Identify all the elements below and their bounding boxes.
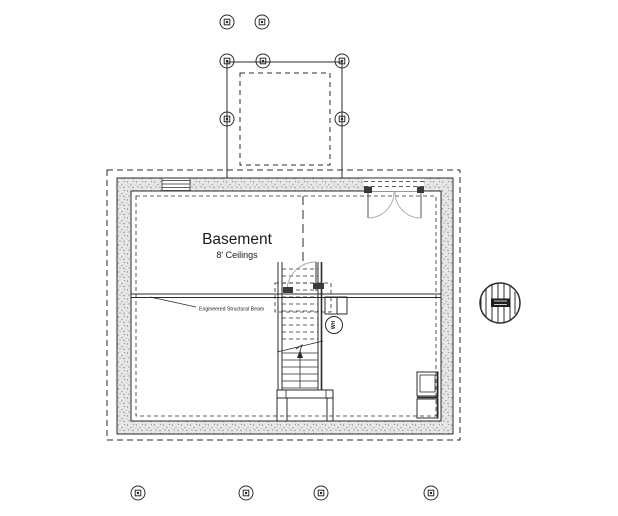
room-title: Basement (202, 231, 272, 248)
pier-marker (255, 15, 269, 29)
pier-marker (239, 486, 253, 500)
pier-marker (220, 15, 234, 29)
pier-marker (256, 54, 270, 68)
staircase (275, 262, 331, 390)
stair-treads-upper (282, 269, 318, 339)
basement-plan-drawing: Engineered Structural Beam (0, 0, 618, 516)
beam-annotation-group: Engineered Structural Beam (150, 297, 264, 313)
stair-jamb-left (283, 287, 293, 293)
water-heater-label: WH (331, 320, 337, 329)
french-doors (364, 179, 424, 218)
pier-marker (424, 486, 438, 500)
beam-bearing-box (325, 297, 347, 314)
beam-annotation: Engineered Structural Beam (199, 307, 264, 313)
floor-plan-canvas: Engineered Structural Beam (0, 0, 618, 516)
mechanical-unit (417, 372, 438, 418)
post-detail-symbol (480, 283, 520, 323)
stair-jamb-right (313, 283, 324, 289)
foundation-wall (117, 178, 453, 434)
beam-leader-line (150, 297, 196, 307)
basement-window (162, 179, 190, 191)
deck-footprint-outline (227, 62, 342, 178)
footing-dashed-outline (107, 170, 460, 440)
water-heater-symbol: WH (326, 317, 343, 334)
room-subtitle: 8' Ceilings (216, 250, 258, 260)
door-jamb-right (417, 187, 424, 194)
pier-marker (131, 486, 145, 500)
stair-direction-arrow (297, 350, 303, 388)
inner-footing-dashed-line (136, 196, 436, 416)
stair-door-swing-arc (287, 262, 316, 291)
detail-reference-tag (491, 299, 510, 308)
pier-marker (314, 486, 328, 500)
